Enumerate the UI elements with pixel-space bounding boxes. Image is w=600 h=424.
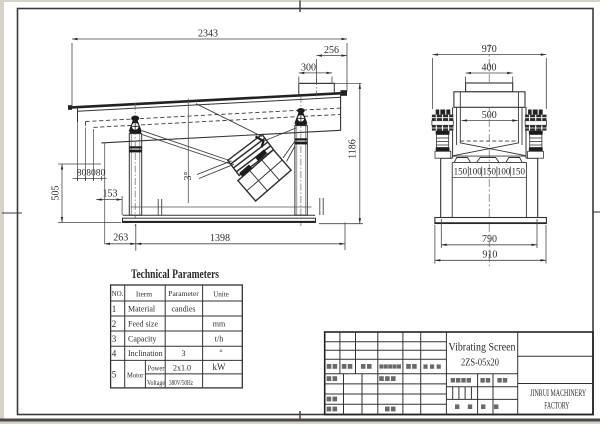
svg-text:NO.: NO. <box>112 290 124 298</box>
svg-text:790: 790 <box>482 234 497 245</box>
svg-text:FACTORY: FACTORY <box>544 402 569 412</box>
svg-text:808080: 808080 <box>77 168 106 178</box>
svg-text:Voltage: Voltage <box>147 379 165 387</box>
svg-text:2: 2 <box>112 319 117 329</box>
svg-text:100: 100 <box>497 166 511 176</box>
svg-text:Parameter: Parameter <box>168 289 199 298</box>
svg-text:Unite: Unite <box>213 291 229 299</box>
svg-text:150: 150 <box>483 166 497 176</box>
svg-text:150: 150 <box>454 166 468 176</box>
svg-text:263: 263 <box>113 233 128 244</box>
svg-text:°: ° <box>219 348 222 357</box>
svg-text:256: 256 <box>324 45 339 56</box>
svg-text:300: 300 <box>301 62 316 73</box>
svg-text:1186: 1186 <box>348 139 359 159</box>
svg-text:Material: Material <box>128 305 156 314</box>
svg-text:100: 100 <box>468 166 482 176</box>
svg-text:380V/50Hz: 380V/50Hz <box>169 378 193 387</box>
svg-text:4: 4 <box>112 348 117 358</box>
svg-text:kW: kW <box>213 362 227 372</box>
svg-text:Power: Power <box>148 363 165 372</box>
svg-text:2x1.0: 2x1.0 <box>173 364 191 373</box>
svg-text:Technical Parameters: Technical Parameters <box>131 267 219 281</box>
svg-text:150: 150 <box>511 166 525 176</box>
svg-text:3°: 3° <box>183 172 194 181</box>
svg-text:505: 505 <box>51 186 62 201</box>
svg-text:Vibrating Screen: Vibrating Screen <box>449 342 516 354</box>
svg-text:5: 5 <box>112 370 117 380</box>
svg-text:Capacity: Capacity <box>128 335 156 344</box>
svg-text:Inclination: Inclination <box>128 349 163 358</box>
svg-text:3: 3 <box>112 334 117 344</box>
svg-text:3: 3 <box>182 349 186 358</box>
svg-text:2343: 2343 <box>198 29 218 40</box>
svg-text:400: 400 <box>482 62 497 73</box>
svg-text:JINRUI MACHINERY: JINRUI MACHINERY <box>530 389 586 399</box>
svg-text:Iterm: Iterm <box>136 290 152 299</box>
svg-text:Feed size: Feed size <box>128 320 158 329</box>
svg-text:910: 910 <box>482 249 497 260</box>
svg-text:500: 500 <box>482 110 497 121</box>
svg-text:1: 1 <box>112 304 117 314</box>
svg-text:candies: candies <box>172 305 196 314</box>
svg-text:153: 153 <box>103 188 118 199</box>
svg-text:mm: mm <box>213 320 226 329</box>
svg-text:970: 970 <box>482 44 497 55</box>
svg-text:Motor: Motor <box>127 370 144 379</box>
svg-text:1398: 1398 <box>210 233 230 244</box>
svg-text:t/h: t/h <box>215 335 223 344</box>
svg-text:2ZS-05x20: 2ZS-05x20 <box>461 357 499 369</box>
